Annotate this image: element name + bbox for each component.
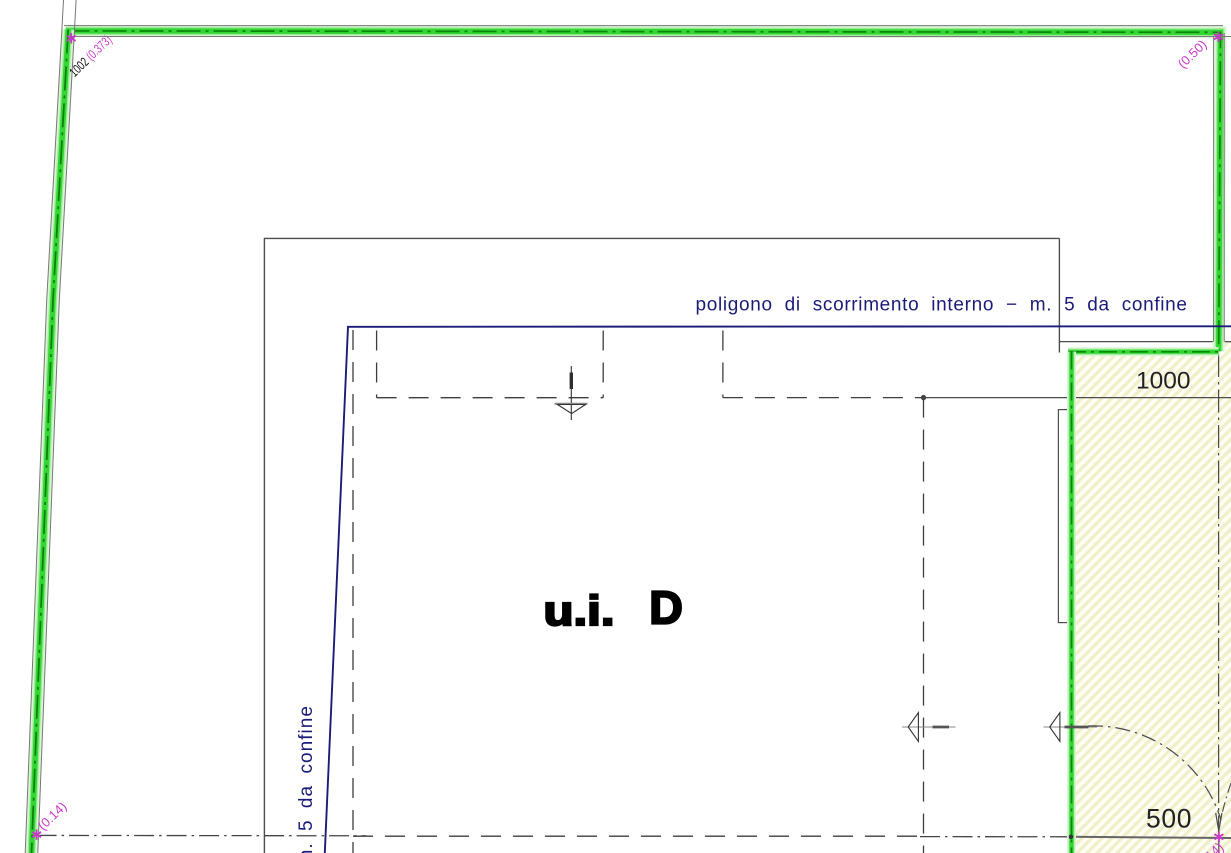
svg-text:D: D (649, 582, 683, 634)
svg-text:m. 5 da confine: m. 5 da confine (296, 706, 317, 853)
svg-text:500: 500 (1146, 804, 1192, 834)
svg-text:1000: 1000 (1136, 368, 1191, 395)
svg-text:poligono di scorrimento intern: poligono di scorrimento interno − m. 5 d… (696, 295, 1188, 316)
svg-text:u.i.: u.i. (544, 587, 615, 634)
